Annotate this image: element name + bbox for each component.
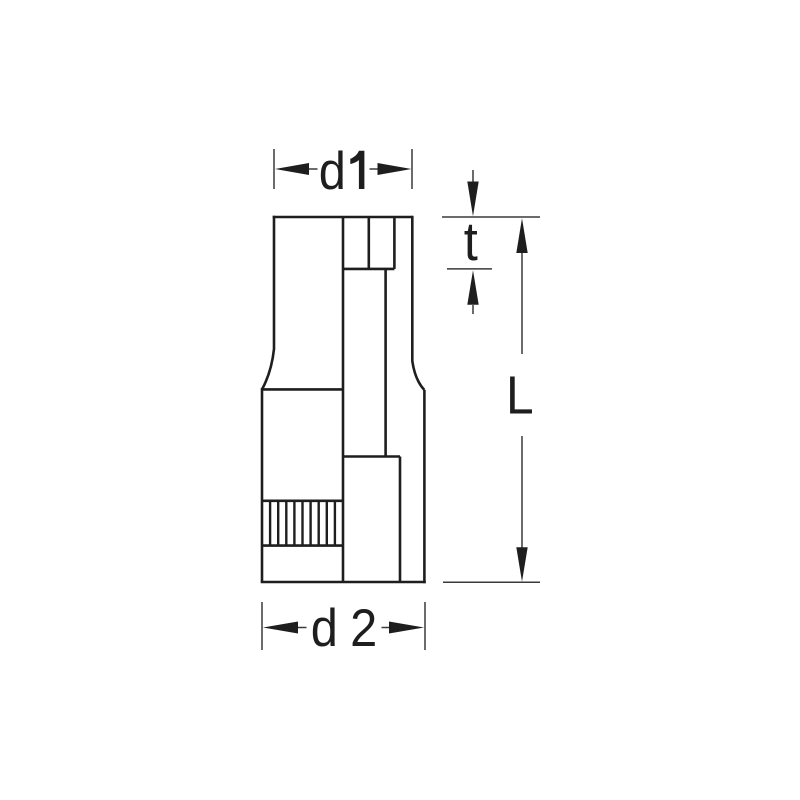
svg-text:2: 2	[350, 598, 377, 657]
svg-text:d: d	[311, 598, 338, 657]
svg-text:t: t	[464, 211, 478, 272]
svg-text:d: d	[319, 141, 346, 200]
svg-text:L: L	[506, 365, 534, 425]
